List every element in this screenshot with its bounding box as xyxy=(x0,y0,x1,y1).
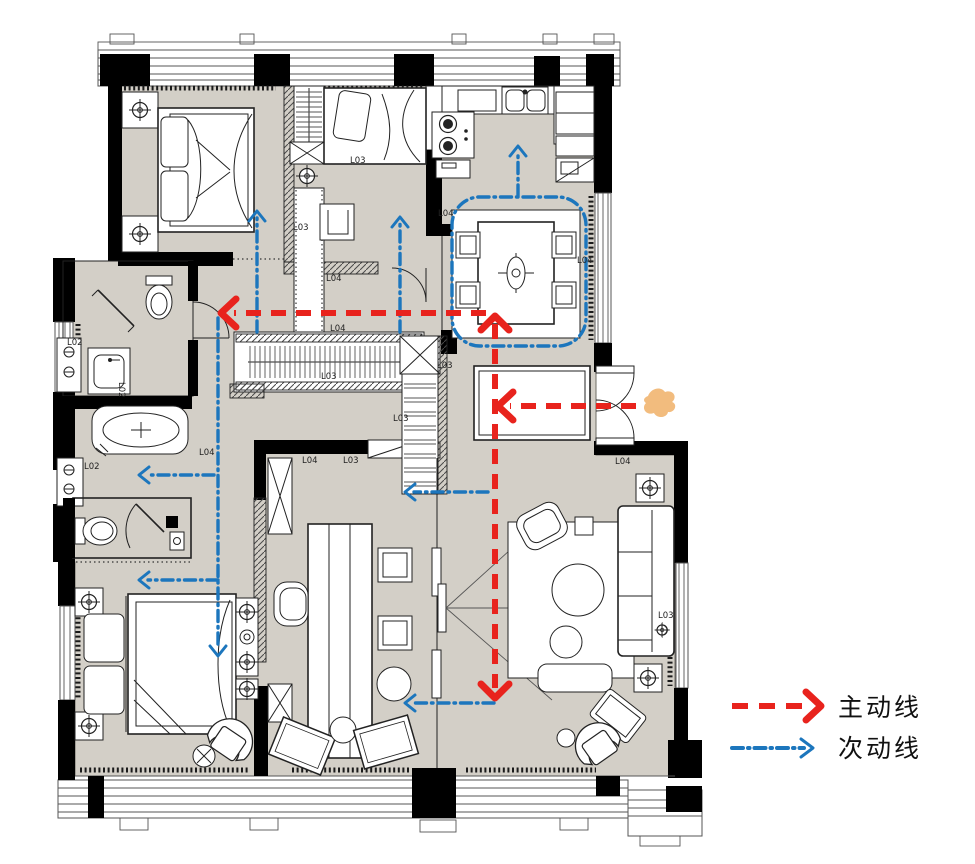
floor-code-label: L02 xyxy=(116,382,126,398)
floor-code-label: L02 xyxy=(84,462,100,472)
floor-code-label: L03 xyxy=(350,156,366,166)
legend-main-label: 主动线 xyxy=(838,693,922,722)
floor-code-label: L04 xyxy=(302,456,318,466)
wardrobe-divider xyxy=(290,86,324,344)
floor-code-label: L02 xyxy=(67,338,83,348)
floor-code-label: L04 xyxy=(577,256,593,266)
legend-main-line: 主动线 xyxy=(732,692,922,722)
floor-code-label: L04 xyxy=(326,274,342,284)
legend: 主动线 次动线 xyxy=(732,692,922,763)
floor-code-label: L04 xyxy=(199,448,215,458)
floor-code-label: L04 xyxy=(438,209,454,219)
floor-code-label: L03 xyxy=(293,223,309,233)
dining-set xyxy=(452,210,580,338)
floor-code-label: L03 xyxy=(393,414,409,424)
floor-plan-drawing: 主动线 次动线 L03L03L04L04L04L04L03L03L03L04L0… xyxy=(0,0,975,864)
legend-secondary-label: 次动线 xyxy=(838,734,922,763)
entry-person-marker xyxy=(644,389,675,418)
floor-code-label: L04 xyxy=(615,457,631,467)
floor-code-label: L03 xyxy=(343,456,359,466)
floor-plan-page: 主动线 次动线 L03L03L04L04L04L04L03L03L03L04L0… xyxy=(0,0,975,864)
floor-code-label: L04 xyxy=(330,324,346,334)
floor-code-label: L03 xyxy=(437,361,453,371)
floor-code-label: L03 xyxy=(321,372,337,382)
floor-code-label: L03 xyxy=(658,611,674,621)
legend-secondary-line: 次动线 xyxy=(732,734,922,763)
